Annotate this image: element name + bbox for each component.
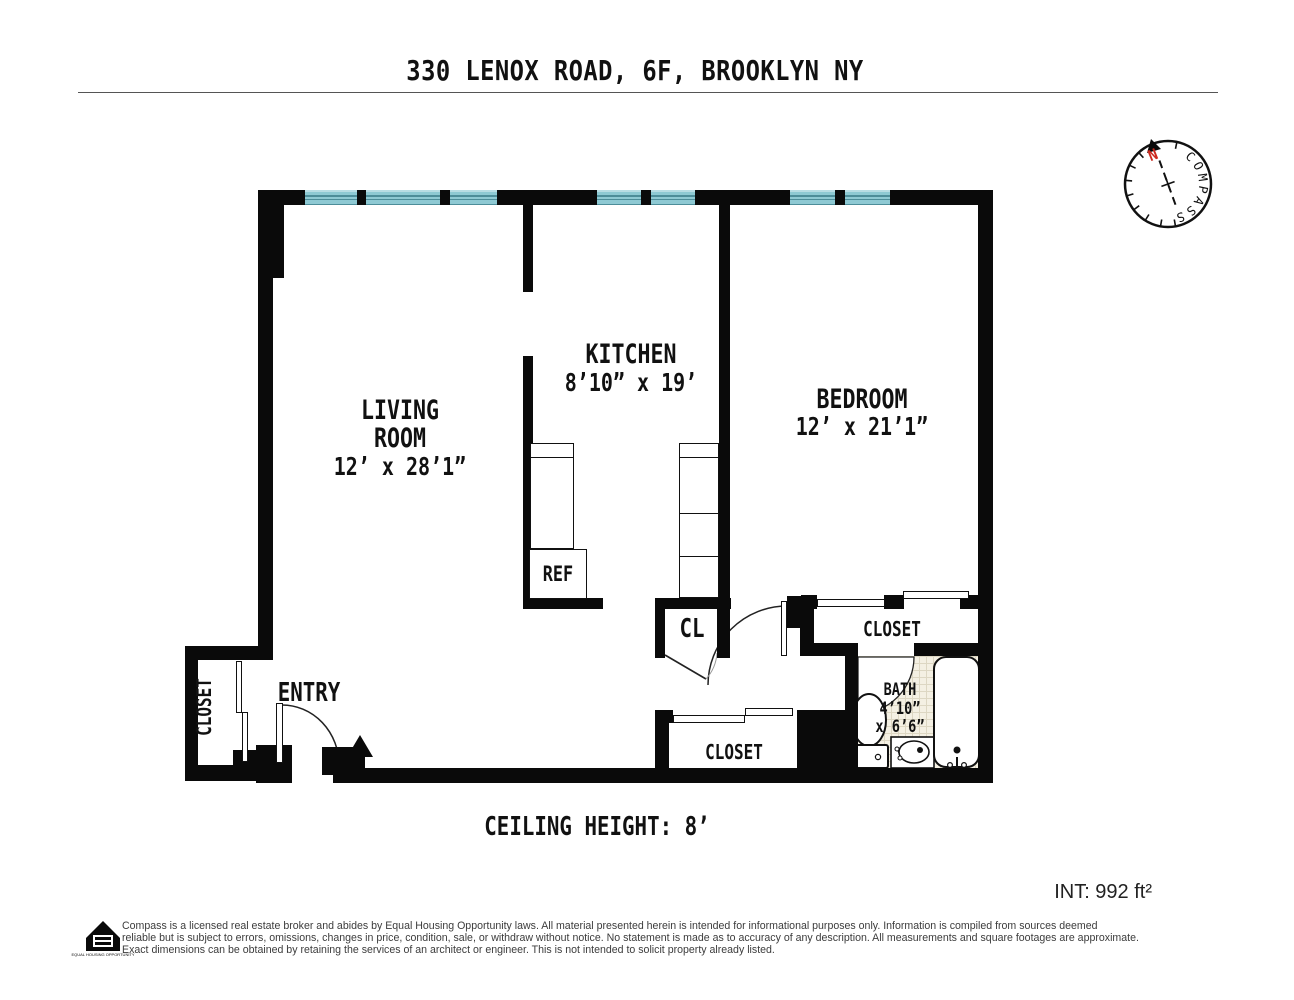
room-name: BEDROOM [782,386,942,413]
entry-closet-label: CLOSET [192,659,216,755]
wall-segment [884,595,904,609]
cl-closet-label: CL [672,614,712,644]
disclaimer-line: reliable but is subject to errors, omiss… [122,932,1222,944]
disclaimer-line: Compass is a licensed real estate broker… [122,920,1222,932]
hall-door-leaf [781,601,787,656]
room-dimensions: x 6’6” [866,718,933,737]
room-dimensions: 4’10” [866,700,933,719]
sliding-door [817,599,885,607]
sliding-door [745,708,793,716]
wall-segment [719,204,730,604]
wall-segment [258,190,273,658]
wall-segment [655,598,665,658]
sliding-door [242,712,248,762]
window [651,190,695,205]
room-dimensions: 8’10” x 19’ [551,369,711,397]
floorplan-page: 330 LENOX ROAD, 6F, BROOKLYN NY [0,0,1294,1000]
wall-segment [655,710,673,723]
counter-edge-line [531,457,573,458]
wall-segment [797,710,858,783]
sliding-door [673,715,745,723]
window [366,190,440,205]
ceiling-height-label: CEILING HEIGHT: 8’ [437,812,757,842]
wall-segment [801,595,817,609]
disclaimer-text: Compass is a licensed real estate broker… [122,920,1222,957]
cl-closet-door [665,653,717,679]
stove-bottom-line [680,556,718,557]
window [845,190,890,205]
wall-segment [523,598,603,609]
wall-segment [914,643,993,656]
kitchen-counter-left [530,443,574,549]
wall-segment [523,204,533,292]
entry-label: ENTRY [269,678,349,708]
room-name: BATH [866,681,933,700]
kitchen-counter-right [679,443,719,598]
living-room-label: LIVING ROOM 12’ x 28’1” [320,397,480,481]
disclaimer-line: Exact dimensions can be obtained by reta… [122,944,1222,956]
bathtub [934,657,979,770]
stove-top-line [680,513,718,514]
wall-segment [185,646,273,660]
refrigerator: REF [529,549,587,599]
floorplan-fixtures-layer: N COMPASS EQUAL HOUSING OPPORTUNITY [0,0,1294,1000]
compass-rose: N COMPASS [1125,139,1211,227]
hall-closet-label: CLOSET [674,740,794,764]
wall-segment [978,190,993,783]
sliding-door [903,591,969,599]
window [305,190,357,205]
room-name: KITCHEN [551,341,711,369]
refrigerator-label: REF [543,562,573,586]
bedroom-label: BEDROOM 12’ x 21’1” [782,386,942,440]
room-dimensions: 12’ x 28’1” [320,453,480,481]
window [597,190,641,205]
entry-door-leaf [276,703,283,763]
sliding-door [236,661,242,713]
wall-segment [322,747,360,775]
room-name: LIVING [320,397,480,425]
wall-segment [256,745,292,783]
wall-segment [717,598,730,658]
room-name: ROOM [320,425,480,453]
kitchen-label: KITCHEN 8’10” x 19’ [551,341,711,397]
interior-area-label: INT: 992 ft² [900,881,1152,904]
bath-sink [891,737,934,768]
bath-label: BATH 4’10” x 6’6” [866,681,933,737]
window [450,190,497,205]
bedroom-closet-label: CLOSET [832,617,952,641]
room-dimensions: 12’ x 21’1” [782,413,942,440]
window [790,190,835,205]
counter-edge-line [680,457,718,458]
